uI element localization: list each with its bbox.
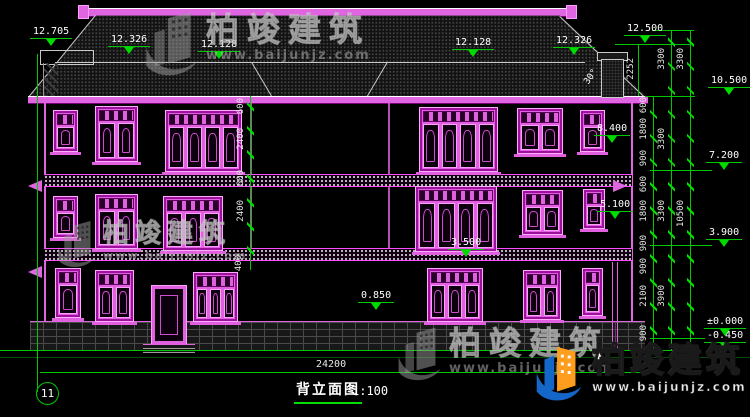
chimney xyxy=(601,59,624,98)
level-marker: 12.128 xyxy=(452,38,494,57)
level-triangle-icon xyxy=(724,88,734,95)
window-pane xyxy=(526,207,541,231)
level-marker: 8.400 xyxy=(594,124,630,143)
entry-door xyxy=(152,286,186,344)
window xyxy=(522,190,563,235)
level-value: 3.500 xyxy=(448,238,484,250)
axis-grid-line xyxy=(37,54,38,392)
dim-label: 3300 xyxy=(676,48,686,70)
window xyxy=(517,108,563,154)
level-triangle-icon xyxy=(124,47,134,54)
level-marker: 12.500 xyxy=(624,24,666,43)
window-pane xyxy=(224,289,234,318)
level-value: ±0.000 xyxy=(704,317,746,329)
eave-bracket-icon xyxy=(28,180,42,192)
window-pane xyxy=(187,127,202,168)
level-value: 10.500 xyxy=(708,76,750,88)
window-transom xyxy=(527,274,557,285)
window-transom xyxy=(99,198,134,209)
brand-logo-icon xyxy=(143,12,201,78)
dim-line-chimney xyxy=(638,44,639,96)
eave-bracket-icon xyxy=(28,266,42,278)
level-value: 8.400 xyxy=(594,124,630,136)
level-triangle-icon xyxy=(569,48,579,55)
window-transom xyxy=(99,274,130,285)
level-value: 12.500 xyxy=(624,24,666,36)
window xyxy=(523,270,561,320)
window-pane xyxy=(542,125,560,150)
dim-label: 1800 xyxy=(639,200,649,222)
dim-label: 2400 xyxy=(236,200,246,222)
dim-label: 900 xyxy=(639,325,649,341)
window xyxy=(193,272,238,322)
level-triangle-icon xyxy=(461,250,471,257)
window-transom xyxy=(59,272,77,283)
window-pane xyxy=(99,287,113,318)
wall-corner-left xyxy=(44,102,46,322)
window-pane xyxy=(423,124,439,168)
window-pane xyxy=(544,207,559,231)
level-value: 12.128 xyxy=(452,38,494,50)
dim-label-total-width: 24200 xyxy=(316,359,346,370)
window-transom xyxy=(423,111,494,122)
window-pane xyxy=(521,125,539,150)
dim-label: 3300 xyxy=(657,48,667,70)
watermark-url-text: www.baijunjz.com xyxy=(592,380,747,394)
watermark-url-text: www.baijunjz.com xyxy=(103,249,247,262)
window-transom xyxy=(197,276,234,287)
level-triangle-icon xyxy=(46,39,56,46)
eave-fascia-board xyxy=(28,96,648,104)
dim-label: 1800 xyxy=(639,118,649,140)
level-triangle-icon xyxy=(719,240,729,247)
dim-label: 10500 xyxy=(676,200,686,227)
axis-bubble: 11 xyxy=(36,382,59,405)
window-transom xyxy=(586,272,599,283)
watermark-brand-text: 柏竣建筑 xyxy=(103,220,247,249)
window-transom xyxy=(99,110,134,121)
dim-label: 3300 xyxy=(657,200,667,222)
window-pane xyxy=(59,285,77,314)
window-pane xyxy=(442,124,458,168)
level-marker: 5.100 xyxy=(597,200,633,219)
level-marker: 0.850 xyxy=(358,291,394,310)
dim-label: 2100 xyxy=(639,285,649,307)
window-pane xyxy=(99,123,115,158)
window-pane xyxy=(419,203,435,248)
window xyxy=(95,270,134,322)
window-transom xyxy=(57,200,74,211)
level-value: 0.850 xyxy=(358,291,394,303)
window-pane xyxy=(116,287,130,318)
window xyxy=(419,107,498,172)
window-transom xyxy=(521,112,559,123)
dim-label: 600 xyxy=(236,170,246,186)
level-marker: 3.500 xyxy=(448,238,484,257)
watermark-url-text: www.baijunjz.com xyxy=(206,48,371,63)
window-pane xyxy=(210,289,220,318)
dim-chain-right-storey xyxy=(668,30,675,350)
dim-label: 2252 xyxy=(626,58,636,80)
window-pane xyxy=(586,285,599,312)
brand-logo-icon xyxy=(56,220,98,270)
level-marker: 3.900 xyxy=(706,228,742,247)
window-transom xyxy=(419,190,493,201)
level-value: 5.100 xyxy=(597,200,633,212)
level-value: 7.200 xyxy=(706,151,742,163)
window xyxy=(53,110,78,152)
floor-band-3f-2f xyxy=(44,174,632,187)
level-triangle-icon xyxy=(610,212,620,219)
window-transom xyxy=(431,272,479,283)
dim-chain-right-overall xyxy=(687,30,694,350)
rear-elevation-drawing: 30° 2252 600 1800 900 xyxy=(0,0,750,417)
watermark: 柏竣建筑 www.baijunjz.com xyxy=(143,12,371,78)
window xyxy=(95,106,138,162)
window-transom xyxy=(57,114,74,125)
dim-label: 3300 xyxy=(657,128,667,150)
dim-tick-line xyxy=(650,245,712,246)
level-triangle-icon xyxy=(607,136,617,143)
watermark-brand-text: 柏竣建筑 xyxy=(592,343,747,380)
level-marker: 12.326 xyxy=(553,36,595,55)
dim-label: 600 xyxy=(639,176,649,192)
dim-tick-line xyxy=(615,44,691,45)
level-value: 12.705 xyxy=(30,27,72,39)
watermark-brand-text: 柏竣建筑 xyxy=(206,12,371,48)
window xyxy=(165,110,242,172)
level-triangle-icon xyxy=(468,50,478,57)
dim-label: 600 xyxy=(639,97,649,113)
window-pane xyxy=(527,287,541,316)
dim-label: 3900 xyxy=(657,285,667,307)
dim-chain-left-inner xyxy=(247,96,254,270)
window-pane xyxy=(197,289,207,318)
dim-label: 900 xyxy=(639,235,649,251)
brand-logo-icon xyxy=(396,326,444,384)
brand-logo-icon xyxy=(531,343,587,405)
level-marker: 12.705 xyxy=(30,27,72,46)
level-triangle-icon xyxy=(371,303,381,310)
window-transom xyxy=(167,200,219,211)
window-pane xyxy=(118,123,134,158)
ridge-end-ornament xyxy=(78,5,89,19)
dim-tick-line xyxy=(650,338,705,339)
dim-label: 600 xyxy=(236,98,246,114)
dim-label: 900 xyxy=(639,258,649,274)
level-triangle-icon xyxy=(719,163,729,170)
drawing-scale: 1:100 xyxy=(352,384,388,398)
window-pane xyxy=(431,285,445,318)
left-parapet-hatch xyxy=(43,63,58,96)
dim-label: 2400 xyxy=(236,128,246,150)
eave-bracket-icon xyxy=(613,180,627,192)
watermark: 柏竣建筑 www.baijunjz.com xyxy=(56,220,247,270)
window-pane xyxy=(169,127,184,168)
level-marker: 7.200 xyxy=(706,151,742,170)
dim-tick-line xyxy=(650,170,712,171)
window-transom xyxy=(169,114,238,125)
ridge-end-ornament xyxy=(566,5,577,19)
dim-chain-right-inner xyxy=(650,96,657,350)
window-pane xyxy=(544,287,558,316)
level-value: 12.326 xyxy=(553,36,595,48)
level-triangle-icon xyxy=(640,36,650,43)
window-pane xyxy=(479,124,495,168)
dim-tick-line xyxy=(645,96,695,97)
door-steps xyxy=(143,344,195,353)
window-pane xyxy=(465,285,479,318)
dim-label: 900 xyxy=(639,150,649,166)
window xyxy=(427,268,483,322)
level-value: 3.900 xyxy=(706,228,742,240)
window-transom xyxy=(526,194,559,205)
window xyxy=(55,268,81,318)
window-pane xyxy=(205,127,220,168)
window xyxy=(582,268,603,316)
watermark-logo-colored: 柏竣建筑 www.baijunjz.com xyxy=(531,343,747,405)
window-pane xyxy=(448,285,462,318)
level-marker: 10.500 xyxy=(708,76,750,95)
window-pane xyxy=(460,124,476,168)
window-pane xyxy=(57,127,74,148)
